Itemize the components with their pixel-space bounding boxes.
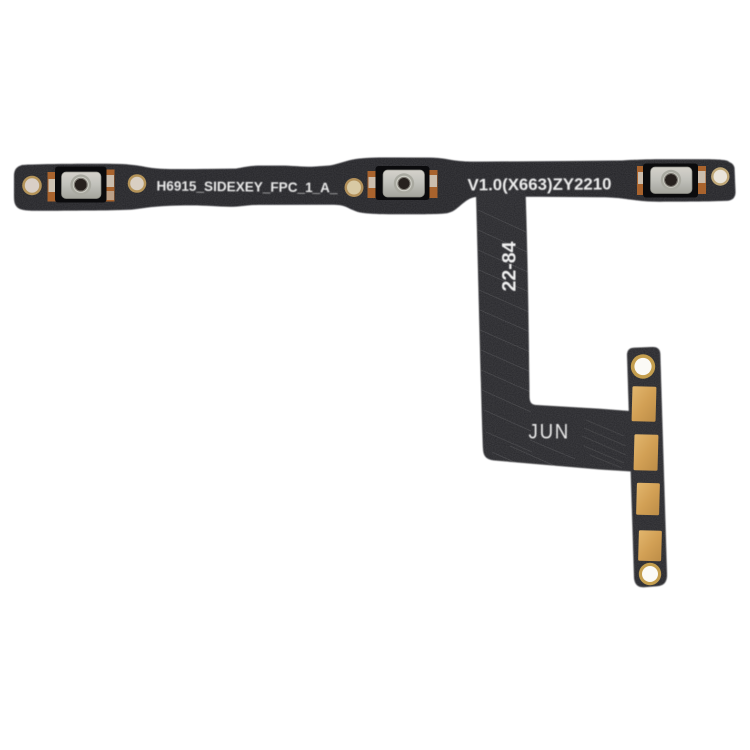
svg-text:V1.0(X663)ZY2210: V1.0(X663)ZY2210 [467, 175, 611, 195]
svg-text:22-84: 22-84 [500, 241, 521, 291]
svg-text:H6915_SIDEXEY_FPC_1_A_: H6915_SIDEXEY_FPC_1_A_ [156, 178, 337, 196]
svg-text:JUN: JUN [529, 420, 571, 444]
